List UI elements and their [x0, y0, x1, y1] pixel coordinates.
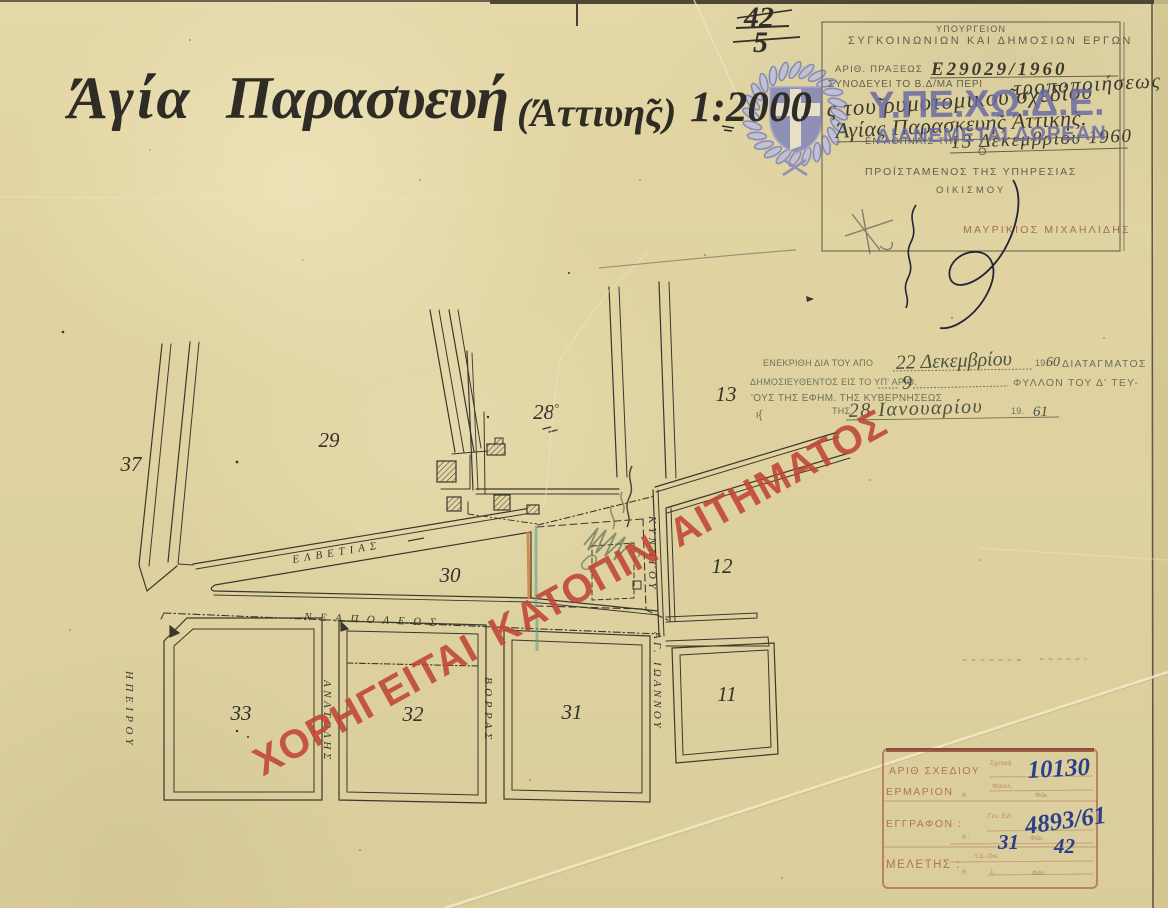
- svg-text:ΝΕΑΠΟΛΕΩΣ: ΝΕΑΠΟΛΕΩΣ: [303, 611, 445, 629]
- svg-text:ΕΡΜΑΡΙΟΝ: ΕΡΜΑΡΙΟΝ: [886, 786, 953, 798]
- svg-text:33: 33: [230, 701, 252, 725]
- svg-text:ΜΕΛΕΤΗΣ :: ΜΕΛΕΤΗΣ :: [886, 859, 961, 871]
- svg-text:11: 11: [717, 682, 736, 706]
- svg-text:13: 13: [716, 382, 737, 406]
- svg-text:5: 5: [753, 26, 768, 59]
- svg-text:Σχετικά: Σχετικά: [990, 759, 1012, 767]
- svg-text:ΒΟΡΡΑΣ: ΒΟΡΡΑΣ: [482, 677, 494, 744]
- svg-text:ΗΠΕΙΡΟΥ: ΗΠΕΙΡΟΥ: [123, 670, 135, 749]
- svg-text:ΠΡΟΪΣΤΑΜΕΝΟΣ ΤΗΣ ΥΠΗΡΕΣΙΑΣ: ΠΡΟΪΣΤΑΜΕΝΟΣ ΤΗΣ ΥΠΗΡΕΣΙΑΣ: [865, 166, 1077, 178]
- svg-text:Φάκελ.: Φάκελ.: [992, 782, 1012, 790]
- svg-text:Φάκ.: Φάκ.: [1035, 791, 1049, 799]
- svg-text:ΑΡΙΘ ΣΧΕΔΙΟΥ: ΑΡΙΘ ΣΧΕΔΙΟΥ: [889, 765, 980, 777]
- svg-text:Γεν. Εντ.: Γεν. Εντ.: [988, 813, 1013, 820]
- svg-text:Υ.Δ.-Οικ.: Υ.Δ.-Οικ.: [974, 853, 999, 860]
- svg-text:ΑΡΙΘ. ΠΡΑΞΕΩΣ: ΑΡΙΘ. ΠΡΑΞΕΩΣ: [835, 64, 923, 75]
- svg-text:ΜΑΥΡΙΚΙΟΣ ΜΙΧΑΗΛΙΔΗΣ: ΜΑΥΡΙΚΙΟΣ ΜΙΧΑΗΛΙΔΗΣ: [963, 224, 1131, 236]
- svg-text:Άγία: Άγία: [64, 65, 193, 131]
- svg-text:60: 60: [1046, 355, 1060, 370]
- svg-text:10130: 10130: [1027, 754, 1091, 784]
- svg-text:30: 30: [439, 563, 462, 587]
- svg-text:Παρασυευή: Παρασυευή: [225, 65, 508, 131]
- svg-text:ΟΙΚΙΣΜΟΥ: ΟΙΚΙΣΜΟΥ: [936, 185, 1006, 196]
- svg-text:ΕΓΓΡΑΦΟΝ :: ΕΓΓΡΑΦΟΝ :: [886, 818, 962, 830]
- svg-text:ΑΓ. ΙΩΑΝΝΟΥ: ΑΓ. ΙΩΑΝΝΟΥ: [651, 631, 663, 731]
- svg-text:θ.:: θ.:: [962, 834, 969, 841]
- svg-text:1:2000: 1:2000: [690, 84, 812, 131]
- svg-text:θ.:: θ.:: [962, 869, 969, 876]
- svg-text:ΔΙΑΤΑΓΜΑΤΟΣ: ΔΙΑΤΑΓΜΑΤΟΣ: [1062, 358, 1147, 370]
- svg-text:37: 37: [120, 452, 144, 476]
- svg-text:(Άττιυη̃ς): (Άττιυη̃ς): [517, 90, 676, 135]
- svg-text:ι{: ι{: [756, 409, 762, 421]
- svg-text:ΦΥΛΛΟΝ ΤΟΥ Δ' ΤΕΥ-: ΦΥΛΛΟΝ ΤΟΥ Δ' ΤΕΥ-: [1013, 377, 1139, 389]
- svg-text:ΣΥΓΚΟΙΝΩΝΙΩΝ ΚΑΙ ΔΗΜΟΣΙΩΝ ΕΡΓΩ: ΣΥΓΚΟΙΝΩΝΙΩΝ ΚΑΙ ΔΗΜΟΣΙΩΝ ΕΡΓΩΝ: [848, 35, 1133, 47]
- svg-text:12: 12: [712, 554, 734, 578]
- svg-text:ΔΗΜΟΣΙΕΥΘΕΝΤΟΣ ΕΙΣ ΤΟ ΥΠ' ΑΡΙΘ: ΔΗΜΟΣΙΕΥΘΕΝΤΟΣ ΕΙΣ ΤΟ ΥΠ' ΑΡΙΘ.: [750, 377, 917, 387]
- svg-text:9: 9: [902, 372, 912, 394]
- svg-text:29: 29: [319, 428, 341, 452]
- svg-text:ΕΛΒΕΤΙΑΣ: ΕΛΒΕΤΙΑΣ: [291, 539, 383, 566]
- svg-text:19.: 19.: [1011, 406, 1024, 416]
- svg-text:42: 42: [1053, 834, 1076, 858]
- svg-text:ΕΝΕΚΡΙΘΗ ΔΙΑ ΤΟΥ ΑΠΟ: ΕΝΕΚΡΙΘΗ ΔΙΑ ΤΟΥ ΑΠΟ: [763, 358, 873, 368]
- svg-text:28°: 28°: [533, 400, 559, 424]
- svg-text:ΥΠΟΥΡΓΕΙΟΝ: ΥΠΟΥΡΓΕΙΟΝ: [936, 24, 1006, 34]
- svg-text:1,: 1,: [990, 869, 996, 876]
- svg-text:Φάκ.: Φάκ.: [1032, 869, 1046, 877]
- svg-text:31: 31: [561, 700, 583, 724]
- svg-text:θ.: θ.: [962, 792, 968, 799]
- svg-text:31: 31: [997, 830, 1019, 854]
